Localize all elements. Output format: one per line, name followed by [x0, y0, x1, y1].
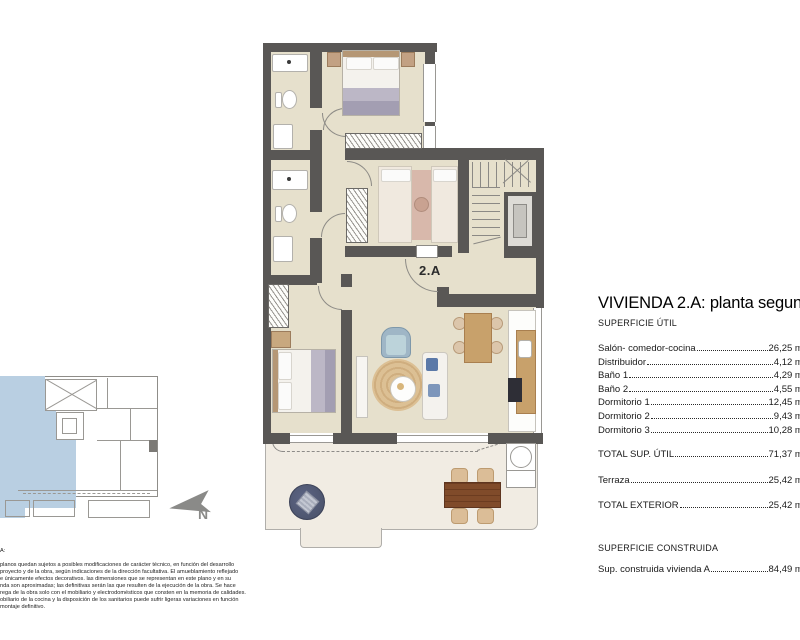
terrace-utility-divider	[506, 470, 536, 471]
total-exterior-row: TOTAL EXTERIOR25,42 m²	[598, 499, 800, 513]
area-value: 10,28 m²	[769, 424, 800, 438]
construida-row: Sup. construida vivienda A84,49 m²	[598, 563, 800, 577]
bath2-bathtub	[273, 236, 293, 262]
bath1-toilet-tank	[275, 92, 282, 108]
area-row: Baño 24,55 m²	[598, 383, 800, 397]
wall-bedroom2-east	[458, 160, 469, 253]
north-arrow-icon	[167, 488, 218, 521]
key-plan-terrace-b	[33, 500, 75, 517]
key-plan-terrace-c	[88, 500, 150, 518]
north-label: N	[198, 506, 208, 522]
dining-table	[464, 313, 492, 363]
wall-bath2-east-a	[310, 150, 322, 212]
wall-landing-south	[437, 294, 536, 307]
wall-living-west-b	[341, 310, 352, 433]
bath1-toilet-bowl	[282, 90, 297, 109]
wall-left	[263, 43, 271, 444]
wall-bath1-east	[310, 43, 322, 108]
area-row: Distribuidor4,12 m²	[598, 356, 800, 370]
area-label: Baño 1	[598, 369, 628, 383]
bath2-toilet-tank	[275, 206, 282, 222]
kitchen-sink	[518, 340, 532, 358]
key-plan-terrace-a	[5, 500, 30, 517]
wall-mid-horizontal	[345, 148, 544, 160]
wall-bath1-east-b	[310, 130, 322, 150]
area-label: Baño 2	[598, 383, 628, 397]
bedroom1-pillow-right	[373, 57, 399, 70]
terrace-step-join	[301, 525, 381, 530]
area-row: Dormitorio 112,45 m²	[598, 396, 800, 410]
terrace-step	[300, 528, 382, 548]
disclaimer-line: A:	[0, 548, 5, 555]
total-util-label: TOTAL SUP. ÚTIL	[598, 448, 674, 462]
window-bedroom1-a	[423, 64, 436, 122]
bedroom3-wardrobe	[268, 284, 289, 328]
bedroom2-bed-a-pillow	[381, 169, 411, 182]
construida-label: Sup. construida vivienda A	[598, 563, 710, 577]
wall-living-west-a	[341, 274, 352, 287]
tv-sideboard	[356, 356, 368, 418]
bedroom3-desk	[271, 331, 291, 348]
area-label: Dormitorio 2	[598, 410, 650, 424]
key-plan	[0, 360, 166, 532]
terrace-table	[444, 482, 501, 508]
bedroom2-bed-b-pillow	[433, 169, 457, 182]
superficie-util-header: SUPERFICIE ÚTIL	[598, 318, 800, 328]
area-value: 12,45 m²	[769, 396, 800, 410]
area-row: Baño 14,29 m²	[598, 369, 800, 383]
key-plan-terrace-line	[18, 490, 157, 491]
sofa-cushion-a	[426, 358, 438, 371]
bedroom2-wardrobe	[346, 188, 368, 243]
dot-leader	[697, 350, 768, 351]
bedroom1-nightstand-left	[327, 52, 341, 67]
key-plan-dark-box	[149, 440, 157, 452]
overhang-dashed-line	[282, 451, 478, 452]
slider-window-a	[290, 435, 333, 443]
wall-bottom-a	[263, 433, 290, 444]
area-label: Distribuidor	[598, 356, 646, 370]
terraza-row: Terraza25,42 m²	[598, 474, 800, 488]
total-util-value: 71,37 m²	[769, 448, 800, 462]
area-value: 9,43 m²	[774, 410, 800, 424]
dot-leader	[629, 391, 773, 392]
bath1-shower	[273, 124, 293, 149]
dot-leader	[680, 507, 768, 508]
terrace-chair-4	[477, 508, 494, 524]
key-plan-line-5	[120, 440, 121, 490]
total-exterior-value: 25,42 m²	[769, 499, 800, 513]
dot-leader	[631, 482, 768, 483]
area-value: 4,12 m²	[774, 356, 800, 370]
entrance-door-leaf	[416, 245, 438, 258]
kitchen-cooktop	[508, 378, 522, 402]
dot-leader	[629, 377, 773, 378]
bedroom1-wardrobe	[345, 133, 422, 149]
floor-plan-sheet: 2.A	[0, 0, 800, 640]
wall-entrance-stub	[438, 246, 452, 257]
stairs-left-flight	[472, 187, 500, 241]
area-value: 26,25 m²	[769, 342, 800, 356]
coffee-table	[390, 376, 416, 402]
page-title: VIVIENDA 2.A: planta segunda	[598, 294, 800, 313]
area-label: Dormitorio 1	[598, 396, 650, 410]
areas-panel: VIVIENDA 2.A: planta segunda SUPERFICIE …	[598, 294, 800, 577]
disclaimer-line: montaje definitivo.	[0, 604, 45, 611]
bath2-faucet-dot	[287, 177, 291, 181]
total-exterior-label: TOTAL EXTERIOR	[598, 499, 679, 513]
wall-bottom-b	[333, 433, 397, 444]
terrace-utility-circle	[510, 446, 532, 468]
wall-landing-stub	[437, 287, 449, 307]
bedroom2-pouf	[414, 197, 429, 212]
area-label: Salón- comedor-cocina	[598, 342, 696, 356]
area-value: 4,29 m²	[774, 369, 800, 383]
construida-value: 84,49 m²	[769, 563, 800, 577]
terrace-chair-3	[451, 508, 468, 524]
dot-leader	[651, 432, 768, 433]
key-plan-line-2	[97, 408, 157, 409]
key-plan-elevator-car	[62, 418, 77, 434]
key-plan-terrace-dashed	[23, 493, 150, 494]
wall-bedroom2-south	[345, 246, 416, 257]
elevator-car	[513, 204, 527, 238]
dot-leader	[647, 364, 773, 365]
dot-leader	[651, 418, 773, 419]
area-row: Salón- comedor-cocina26,25 m²	[598, 342, 800, 356]
dot-leader	[651, 404, 768, 405]
bedroom3-pillow-bottom	[278, 382, 292, 410]
unit-label: 2.A	[419, 263, 441, 278]
total-util-row: TOTAL SUP. ÚTIL71,37 m²	[598, 448, 800, 462]
area-row: Dormitorio 29,43 m²	[598, 410, 800, 424]
bath2-toilet-bowl	[282, 204, 297, 223]
key-plan-line-3	[130, 408, 131, 440]
area-value: 4,55 m²	[774, 383, 800, 397]
wall-east	[536, 148, 544, 308]
coffee-table-decor	[397, 383, 404, 390]
key-plan-line-4	[97, 440, 157, 441]
terraza-label: Terraza	[598, 474, 630, 488]
bedroom3-pillow-top	[278, 352, 292, 380]
slider-window-b	[397, 435, 488, 443]
dot-leader	[711, 571, 768, 572]
dot-leader	[675, 456, 767, 457]
area-label: Dormitorio 3	[598, 424, 650, 438]
armchair-seat	[386, 335, 406, 355]
key-plan-line-1	[107, 378, 108, 408]
bedroom1-nightstand-right	[401, 52, 415, 67]
bath1-faucet-dot	[287, 60, 291, 64]
sofa-cushion-b	[428, 384, 440, 397]
superficie-construida-header: SUPERFICIE CONSTRUIDA	[598, 543, 800, 553]
terraza-value: 25,42 m²	[769, 474, 800, 488]
north-indicator: N	[166, 488, 226, 530]
area-row: Dormitorio 310,28 m²	[598, 424, 800, 438]
bedroom1-pillow-left	[346, 57, 372, 70]
